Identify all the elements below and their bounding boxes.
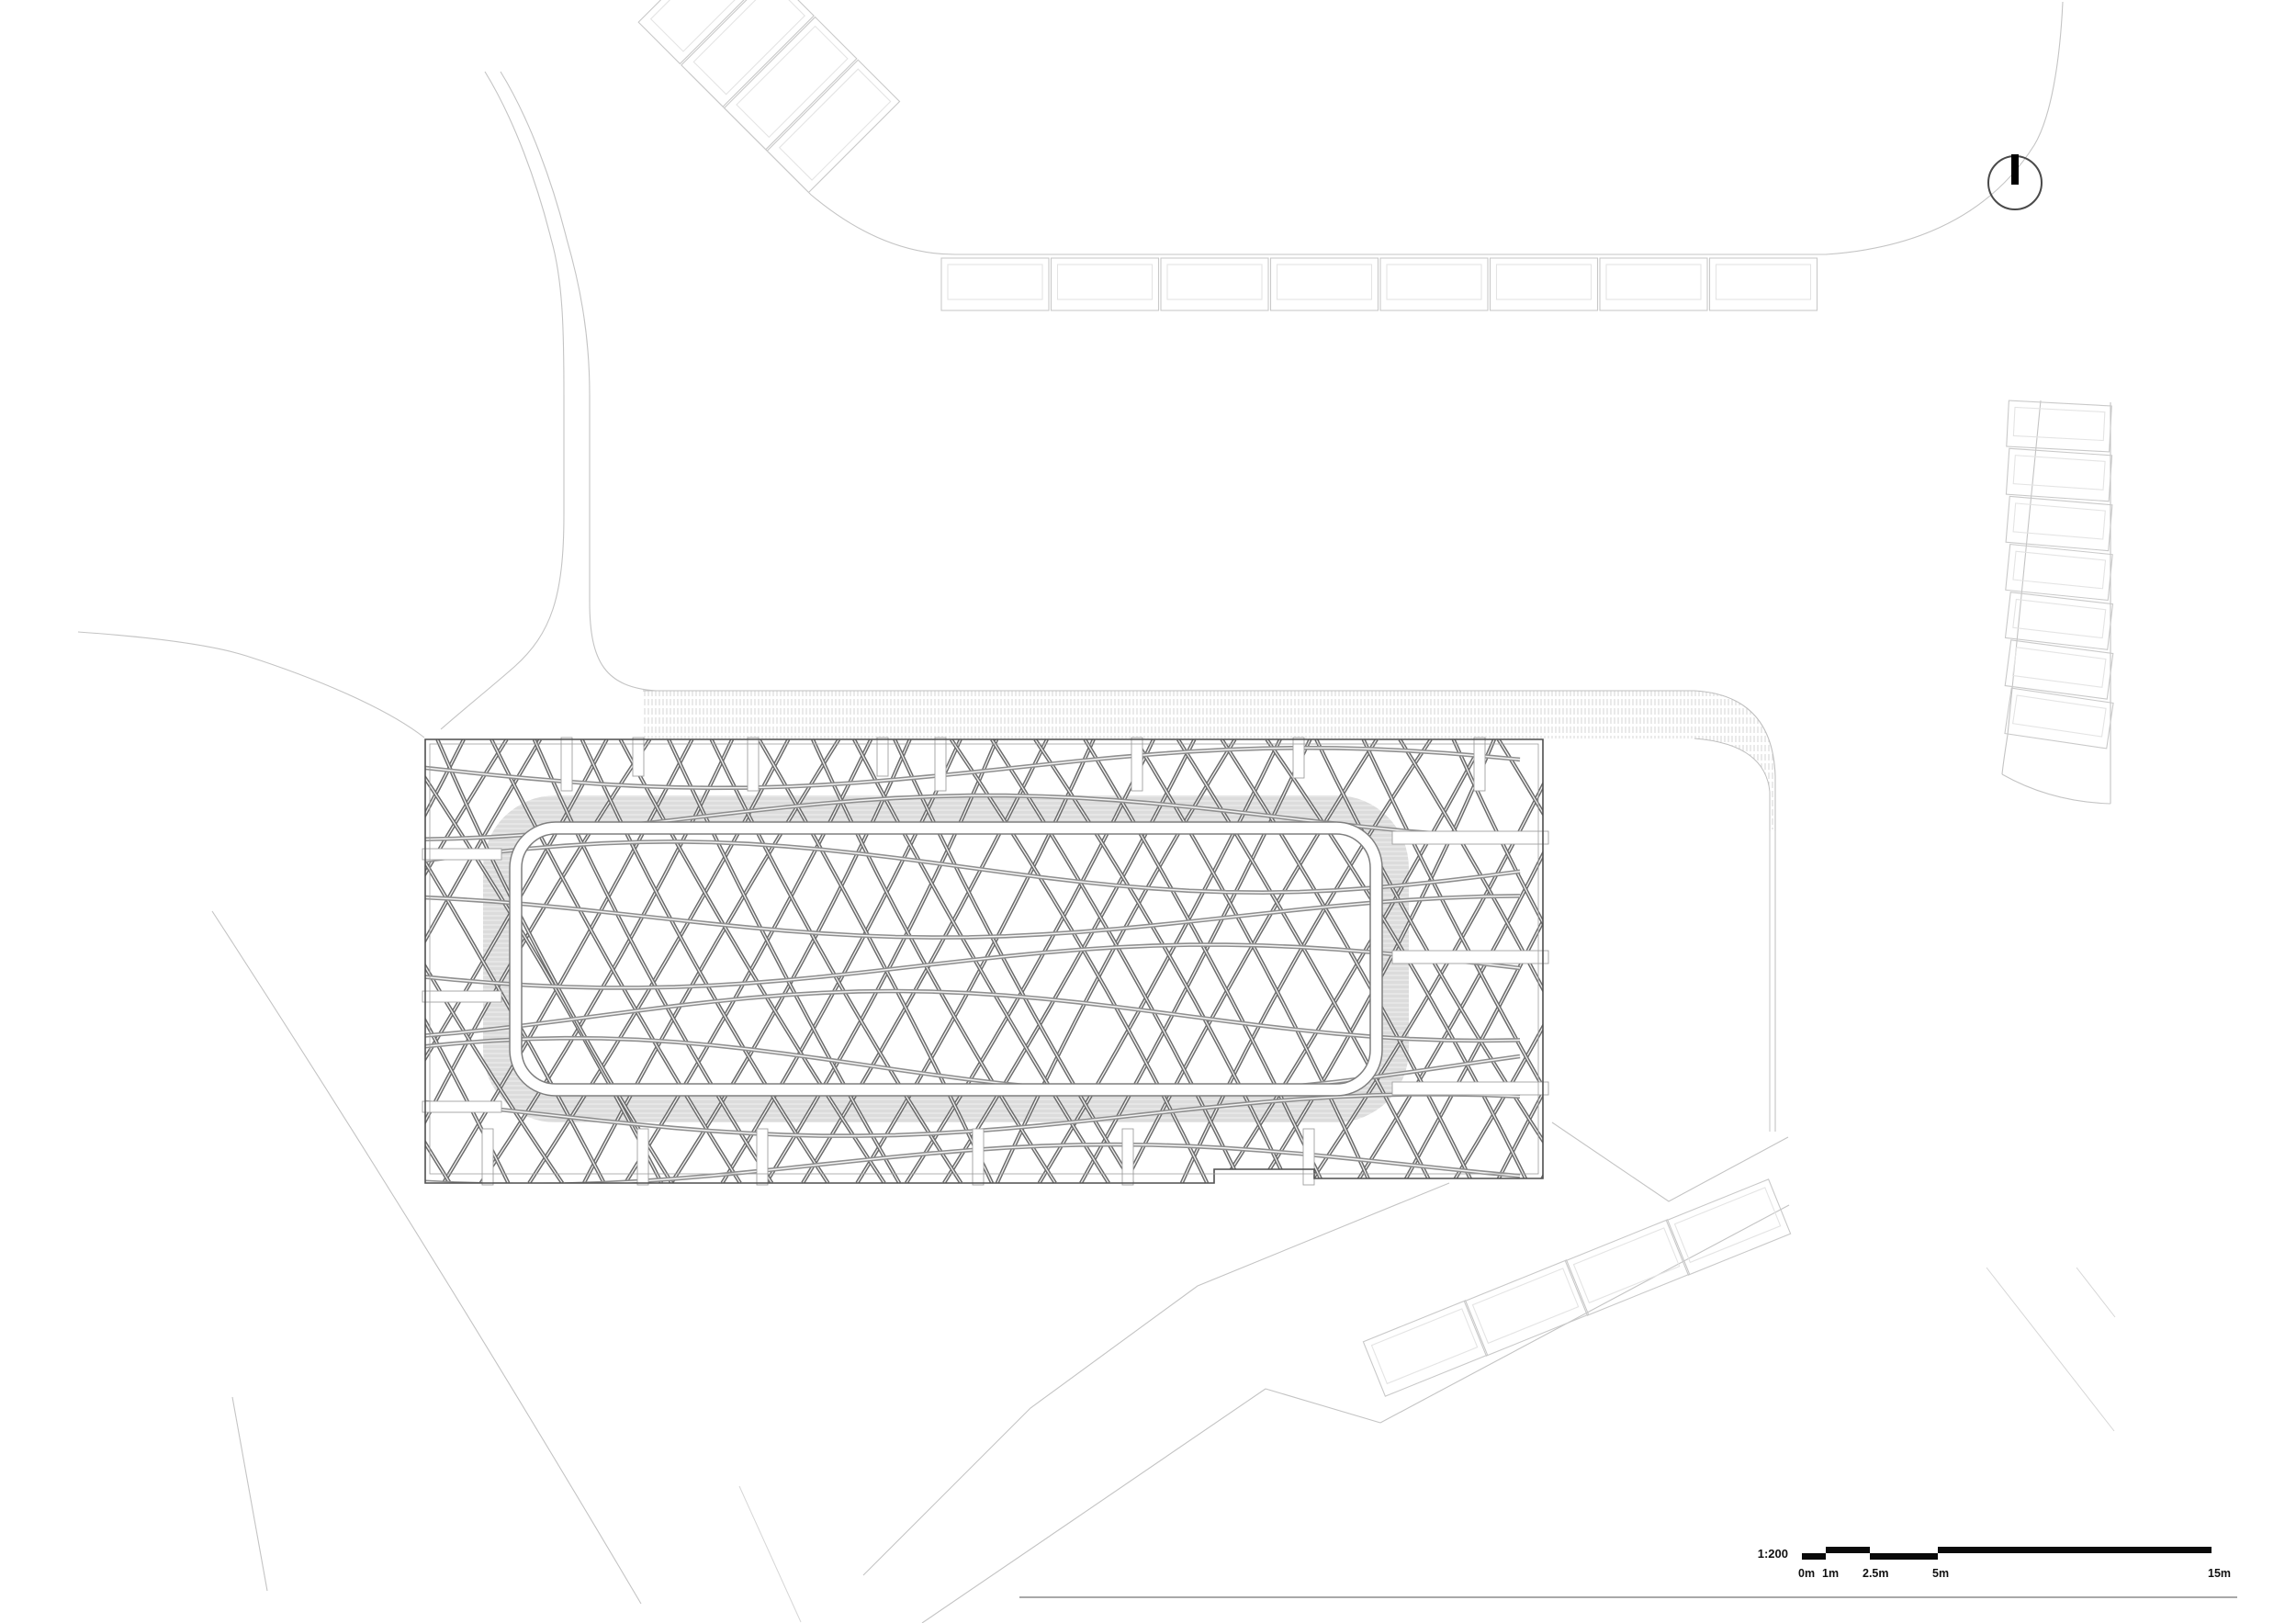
parking-stall bbox=[1464, 1260, 1588, 1356]
parking-stall bbox=[638, 0, 771, 63]
scale-bar-segment bbox=[1802, 1553, 1826, 1560]
parking-stall bbox=[2005, 688, 2113, 749]
parking-stall bbox=[1363, 1301, 1487, 1396]
scale-tick-label: 2.5m bbox=[1863, 1567, 1889, 1580]
site-plan-drawing bbox=[0, 0, 2296, 1623]
scale-bar-segment bbox=[1938, 1547, 2212, 1553]
gridshell-pavilion bbox=[163, 738, 1831, 1185]
parking-stall bbox=[1271, 258, 1379, 310]
sheet-border-rule bbox=[1019, 1596, 2237, 1598]
north-arrow bbox=[1988, 154, 2042, 209]
parking-stall bbox=[2006, 496, 2112, 550]
scale-tick-label: 1m bbox=[1822, 1567, 1839, 1580]
scale-tick-label: 15m bbox=[2208, 1567, 2231, 1580]
north-bar-icon bbox=[2011, 154, 2019, 185]
scale-tick-label: 0m bbox=[1798, 1567, 1815, 1580]
parking-stall bbox=[2006, 448, 2111, 502]
scale-ratio-label: 1:200 bbox=[1733, 1547, 1788, 1561]
parking-stall bbox=[725, 17, 857, 150]
parking-stall bbox=[1710, 258, 1818, 310]
parking-stall bbox=[767, 60, 899, 192]
parking-stall bbox=[941, 258, 1049, 310]
scale-tick-label: 5m bbox=[1932, 1567, 1949, 1580]
scale-bar-segment bbox=[1826, 1547, 1870, 1553]
parking-stall bbox=[1491, 258, 1598, 310]
parking-stall bbox=[1380, 258, 1488, 310]
site-plan-sheet: 1:200 0m 1m 2.5m 5m 15m bbox=[0, 0, 2296, 1623]
scale-bar-segment bbox=[1870, 1553, 1938, 1560]
parking-stall bbox=[1161, 258, 1268, 310]
parking-stall bbox=[1052, 258, 1159, 310]
parking-stall bbox=[681, 0, 814, 107]
parking-stall bbox=[2006, 545, 2112, 601]
parking-stall bbox=[2007, 400, 2111, 452]
parking-stall bbox=[1600, 258, 1707, 310]
parking-stall bbox=[2005, 640, 2113, 699]
